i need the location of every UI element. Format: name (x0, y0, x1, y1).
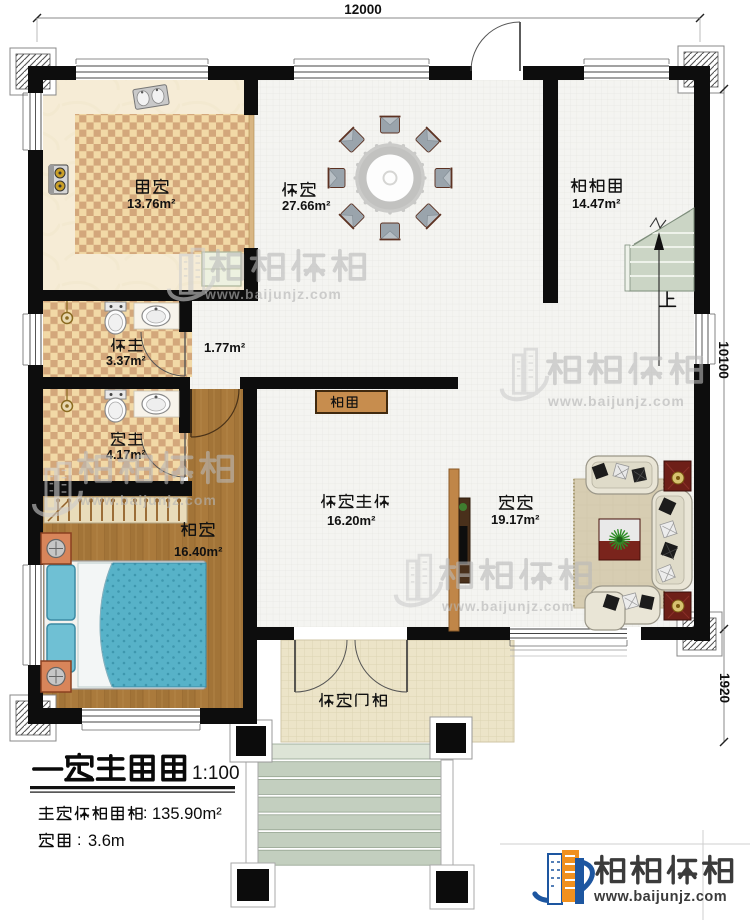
svg-text:www.baijunjz.com: www.baijunjz.com (593, 889, 727, 905)
svg-text:3.37m²: 3.37m² (106, 354, 146, 368)
svg-text::: : (143, 805, 147, 822)
svg-text:www.baijunjz.com: www.baijunjz.com (441, 599, 575, 614)
svg-text:19.17m²: 19.17m² (491, 512, 540, 527)
svg-text::: : (77, 832, 81, 849)
svg-text:1.77m²: 1.77m² (204, 340, 246, 355)
svg-text:1920: 1920 (717, 673, 732, 703)
svg-text:www.baijunjz.com: www.baijunjz.com (547, 393, 685, 409)
svg-text:135.90m²: 135.90m² (152, 805, 222, 823)
svg-text:27.66m²: 27.66m² (282, 198, 331, 213)
svg-text:16.40m²: 16.40m² (174, 544, 223, 559)
svg-text:www.baijunjz.com: www.baijunjz.com (204, 286, 342, 302)
svg-text:14.47m²: 14.47m² (572, 196, 621, 211)
svg-text:1:100: 1:100 (192, 763, 240, 784)
svg-text:16.20m²: 16.20m² (327, 513, 376, 528)
svg-text:12000: 12000 (344, 2, 382, 17)
svg-text:13.76m²: 13.76m² (127, 196, 176, 211)
svg-text:www.baijunjz.com: www.baijunjz.com (79, 492, 217, 508)
svg-text:3.6m: 3.6m (88, 832, 125, 850)
svg-text:10100: 10100 (716, 341, 731, 379)
